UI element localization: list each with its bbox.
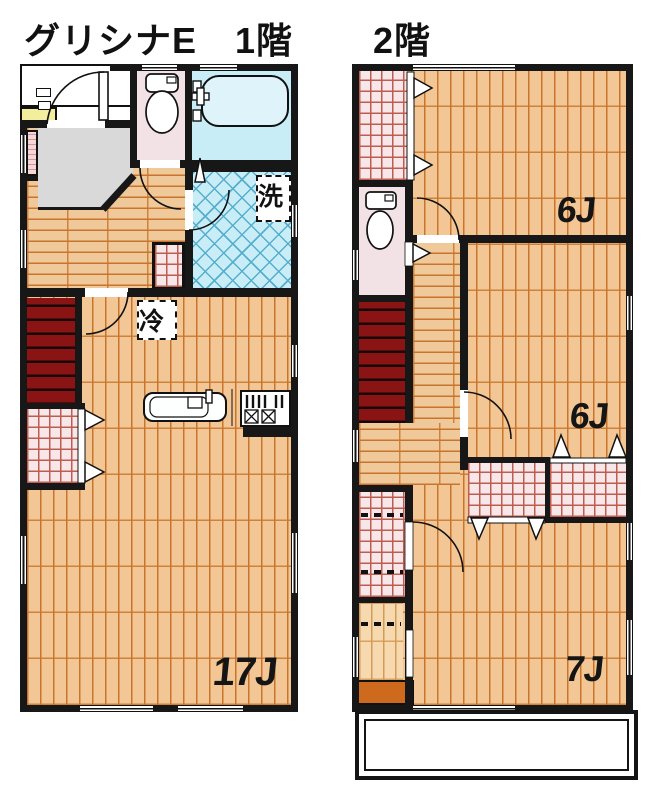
window (200, 64, 237, 71)
building-name: グリシナE (24, 20, 197, 61)
shoe-cabinet (26, 130, 38, 176)
window (352, 430, 359, 462)
closet-2f-top (359, 71, 407, 180)
wall-segment (20, 483, 85, 490)
wall-segment (75, 292, 82, 409)
wall-segment (545, 457, 550, 523)
wall-segment (352, 180, 413, 187)
floor1-plan: 洗 冷 17J (20, 64, 298, 712)
wall-segment (460, 243, 468, 470)
window (626, 296, 633, 330)
bathroom (192, 71, 291, 160)
knob (38, 101, 51, 110)
wall-segment (130, 64, 137, 168)
wall-segment (405, 485, 413, 705)
hallway-floor-2f (359, 423, 460, 485)
storage-shelf-1f (152, 242, 185, 290)
floor2-plan: 6J 6J 7J (352, 64, 633, 775)
closet-2f-mid-right (550, 463, 626, 517)
wall-segment (185, 168, 193, 297)
wall-segment (20, 403, 85, 409)
toilet-room-1f (137, 71, 185, 160)
closet-1f (27, 409, 78, 483)
floor2-title: 2階 (373, 12, 431, 64)
wall-segment (468, 457, 550, 463)
wall-segment (352, 295, 413, 302)
knob (36, 88, 51, 97)
laundry-space-box: 洗 (256, 175, 291, 222)
window (291, 533, 298, 593)
wall-segment (20, 705, 298, 712)
wall-segment (130, 160, 192, 168)
window (142, 64, 177, 71)
room-label-ldk: 17J (211, 650, 279, 695)
page-title: グリシナE1階 (24, 12, 293, 64)
wall-segment (405, 235, 633, 243)
balcony (355, 710, 638, 780)
fridge-space-box: 冷 (137, 300, 177, 340)
laundry-label: 洗 (258, 183, 283, 211)
wall-segment (20, 120, 27, 712)
fridge-label: 冷 (139, 308, 164, 336)
closet-2f-left (359, 492, 405, 597)
wall-segment (20, 288, 298, 297)
wall-segment (22, 176, 38, 181)
room-label-bedroom-bottom: 7J (563, 648, 605, 690)
wall-segment (352, 64, 359, 712)
wall-segment (626, 64, 633, 712)
window (20, 230, 27, 268)
wall-segment (550, 517, 626, 523)
stairs-1f (27, 298, 78, 405)
window (291, 205, 298, 237)
window (80, 705, 153, 712)
stairs-2f (359, 297, 407, 423)
wall-segment (185, 64, 192, 170)
window (626, 620, 633, 675)
wall-segment (352, 485, 413, 492)
window (291, 345, 298, 377)
window (178, 705, 243, 712)
wall-segment (243, 427, 296, 437)
closet-2f-bottom (359, 603, 403, 680)
wall-segment (352, 597, 413, 603)
floorplan-page: グリシナE1階 2階 (0, 0, 659, 800)
genkan-step-line (38, 207, 103, 210)
room-label-bedroom-top: 6J (555, 189, 597, 231)
window (20, 536, 27, 584)
window (413, 64, 515, 71)
wall-segment (291, 64, 298, 712)
window (352, 637, 359, 677)
room-label-bedroom-mid: 6J (568, 395, 610, 437)
window (20, 135, 27, 173)
window (626, 523, 633, 560)
wall-segment (20, 120, 135, 128)
balcony-rail (364, 719, 629, 771)
wall-segment (185, 160, 292, 172)
toilet-room-2f (359, 187, 405, 295)
window (352, 250, 359, 280)
floor1-title: 1階 (235, 20, 293, 61)
closet-2f-mid-left (468, 463, 545, 517)
